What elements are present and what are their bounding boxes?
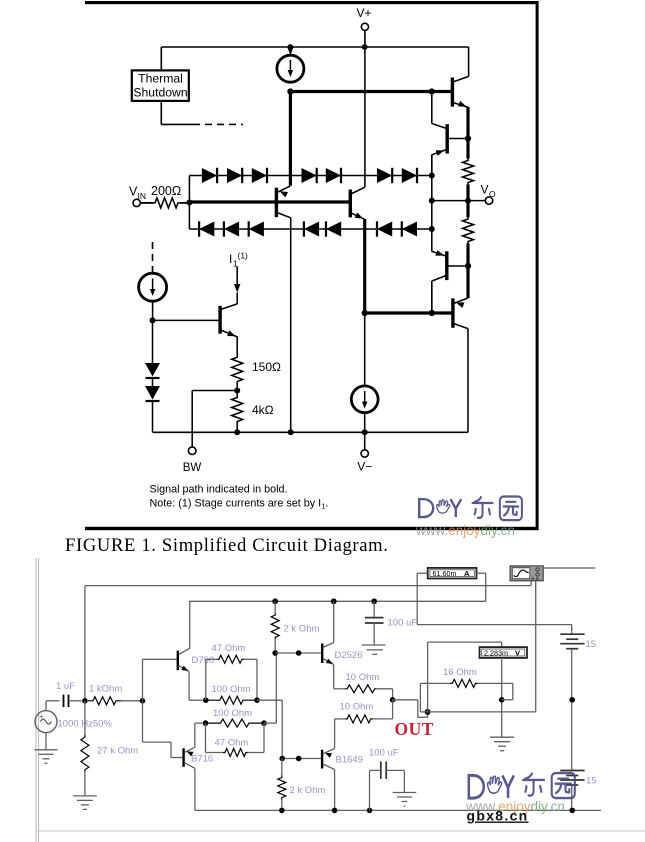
svg-text:I: I [229, 252, 232, 266]
svg-text:Note: (1) Stage currents are s: Note: (1) Stage currents are set by I1. [150, 498, 329, 511]
svg-text:100 Ohm: 100 Ohm [213, 708, 252, 719]
svg-text:200Ω: 200Ω [151, 184, 181, 198]
svg-text:61.60m: 61.60m [433, 569, 457, 578]
svg-text:+: + [39, 712, 44, 721]
svg-text:4kΩ: 4kΩ [252, 403, 274, 417]
svg-text:100 uF: 100 uF [388, 618, 418, 629]
svg-text:D2526: D2526 [335, 650, 363, 661]
svg-text:(1): (1) [238, 251, 249, 261]
svg-text:V+: V+ [356, 6, 371, 20]
svg-text:2 k Ohm: 2 k Ohm [284, 624, 320, 635]
svg-text:www.enjoydiy.cn: www.enjoydiy.cn [415, 523, 515, 538]
svg-text:Signal path indicated in bold.: Signal path indicated in bold. [150, 484, 288, 496]
svg-text:10 Ohm: 10 Ohm [340, 702, 374, 713]
svg-text:A: A [464, 569, 470, 578]
svg-text:10 Ohm: 10 Ohm [346, 672, 380, 683]
svg-text:100 Ohm: 100 Ohm [212, 684, 251, 695]
svg-text:OUT: OUT [395, 719, 434, 739]
svg-text:47 Ohm: 47 Ohm [212, 643, 246, 654]
svg-text:100 uF: 100 uF [369, 748, 399, 759]
svg-text:V−: V− [357, 460, 372, 474]
svg-text:Thermal: Thermal [138, 72, 183, 86]
svg-text:D798: D798 [192, 655, 215, 666]
svg-text:O: O [489, 189, 496, 199]
svg-text:15: 15 [586, 776, 597, 787]
svg-text:1 uF: 1 uF [56, 681, 75, 692]
svg-text:BW: BW [183, 462, 202, 474]
svg-text:27 k Ohm: 27 k Ohm [97, 746, 138, 757]
svg-text:gbx8.cn: gbx8.cn [467, 808, 529, 824]
svg-text:15: 15 [586, 639, 597, 650]
svg-text:B716: B716 [191, 754, 213, 765]
svg-text:2 k Ohm: 2 k Ohm [290, 785, 326, 796]
svg-text:1 kOhm: 1 kOhm [89, 684, 122, 695]
svg-text:B1649: B1649 [336, 755, 363, 766]
svg-text:2.283m: 2.283m [484, 648, 508, 657]
svg-text:150Ω: 150Ω [252, 360, 281, 374]
svg-text:V: V [481, 183, 489, 197]
svg-text:16 Ohm: 16 Ohm [443, 667, 477, 678]
svg-text:FIGURE 1. Simplified Circuit D: FIGURE 1. Simplified Circuit Diagram. [65, 535, 389, 556]
svg-text:47 Ohm: 47 Ohm [215, 738, 249, 749]
svg-text:Shutdown: Shutdown [133, 86, 187, 100]
